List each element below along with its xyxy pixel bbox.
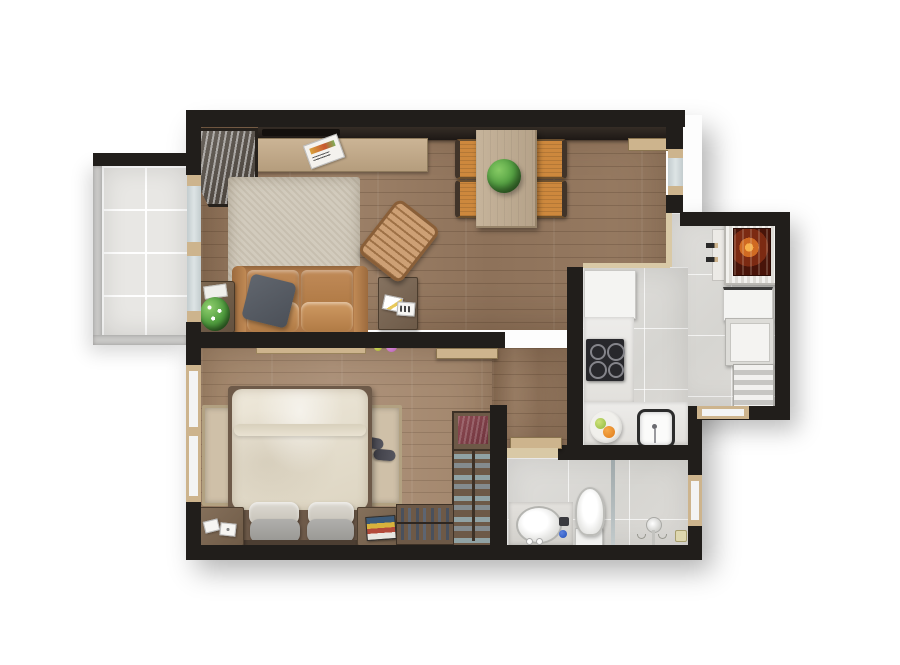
wall-top	[186, 110, 685, 127]
balcony-door-mullion	[187, 242, 201, 256]
faucet-handle-1	[526, 538, 533, 545]
duvet-fold	[234, 424, 366, 436]
terrace-prep-counter	[723, 287, 773, 321]
soap-blue	[559, 530, 567, 538]
wall-terrace-top	[680, 212, 790, 226]
shower-glass-partition	[611, 458, 615, 545]
faucet-handle-2	[536, 538, 543, 545]
grill-fire	[733, 228, 771, 276]
soap-box	[559, 517, 569, 526]
tv-panel	[262, 129, 340, 136]
shoe-rack-rail	[472, 451, 475, 541]
shower-stem	[652, 530, 655, 545]
plant-side-table	[197, 281, 235, 333]
balcony-floor	[102, 166, 187, 335]
flower-dots	[206, 302, 224, 324]
fruit-plate	[590, 411, 622, 443]
terrace-sliding-door	[668, 149, 683, 195]
floor-plan	[0, 0, 900, 665]
sofa-back-cushion-right	[301, 302, 353, 332]
wall-living-right-upper	[666, 110, 683, 149]
balcony-door-jamb-top	[187, 175, 201, 186]
leather-sofa	[232, 266, 368, 338]
wall-living-right-lower	[666, 195, 683, 213]
wall-bottom	[186, 545, 702, 560]
barbecue-grill	[724, 221, 780, 285]
terrace-cabinet-door	[730, 323, 770, 362]
terrace-door-jamb-top	[668, 149, 683, 158]
striped-bench	[733, 364, 774, 409]
burner-4	[608, 362, 624, 378]
balcony-sliding-door	[187, 175, 201, 322]
folded-clothes-maroon	[458, 416, 488, 444]
wall-bedroom-left-upper	[186, 348, 201, 365]
mini-magazine-marks	[400, 306, 411, 313]
sink-faucet-stem	[654, 429, 656, 443]
wall-bathroom-right-lower	[688, 526, 702, 560]
bedroom-door-leaf	[436, 348, 498, 359]
orange-fruit	[603, 426, 615, 438]
wall-terrace-right	[775, 212, 790, 420]
terrace-door-jamb-bottom	[668, 186, 683, 195]
balcony-door-jamb-bottom	[187, 311, 201, 322]
terrace-threshold	[666, 213, 672, 267]
kitchen-sink	[637, 409, 675, 448]
balcony-railing-left	[93, 166, 102, 345]
nightstand-left	[197, 507, 244, 546]
vanity	[509, 502, 573, 545]
terrace-cabinet	[725, 318, 774, 366]
closet-rail	[397, 522, 453, 524]
nightstand-card-1	[203, 518, 220, 533]
burner-1	[590, 344, 606, 360]
wall-bedroom-bathroom	[490, 405, 507, 545]
slipper-right	[373, 449, 396, 462]
burner-3	[589, 361, 607, 379]
refrigerator	[584, 270, 636, 319]
grill-tool-2	[706, 257, 718, 262]
nightstand-card-2	[219, 522, 236, 537]
bedroom-window	[186, 365, 201, 502]
wall-kitchen-left	[567, 267, 583, 458]
bathroom-threshold	[507, 448, 558, 458]
magazine-side-table	[378, 277, 418, 330]
sofa-armrest-right	[354, 266, 368, 338]
floor-drain	[675, 530, 687, 542]
duvet	[232, 389, 368, 510]
cooktop	[586, 339, 624, 381]
burner-2	[607, 343, 625, 361]
bedroom-window-handle	[188, 427, 199, 436]
bathroom-window	[688, 475, 702, 526]
wall-bathroom-top	[558, 445, 702, 460]
mini-magazine	[397, 301, 416, 316]
centerpiece-plant	[487, 159, 521, 193]
toilet-bowl	[575, 487, 605, 536]
grill-tool-1	[706, 243, 718, 248]
terrace-window	[697, 406, 749, 419]
hangers	[401, 508, 449, 540]
terrace-window-glass	[702, 409, 744, 416]
wall-living-bedroom	[186, 332, 505, 348]
wall-balcony-top	[93, 153, 201, 166]
book-stack	[365, 515, 397, 541]
kitchen-threshold	[583, 263, 670, 268]
balcony-railing-bottom	[93, 335, 187, 345]
bathroom-window-glass	[691, 481, 699, 520]
hanging-clothes	[396, 504, 454, 545]
